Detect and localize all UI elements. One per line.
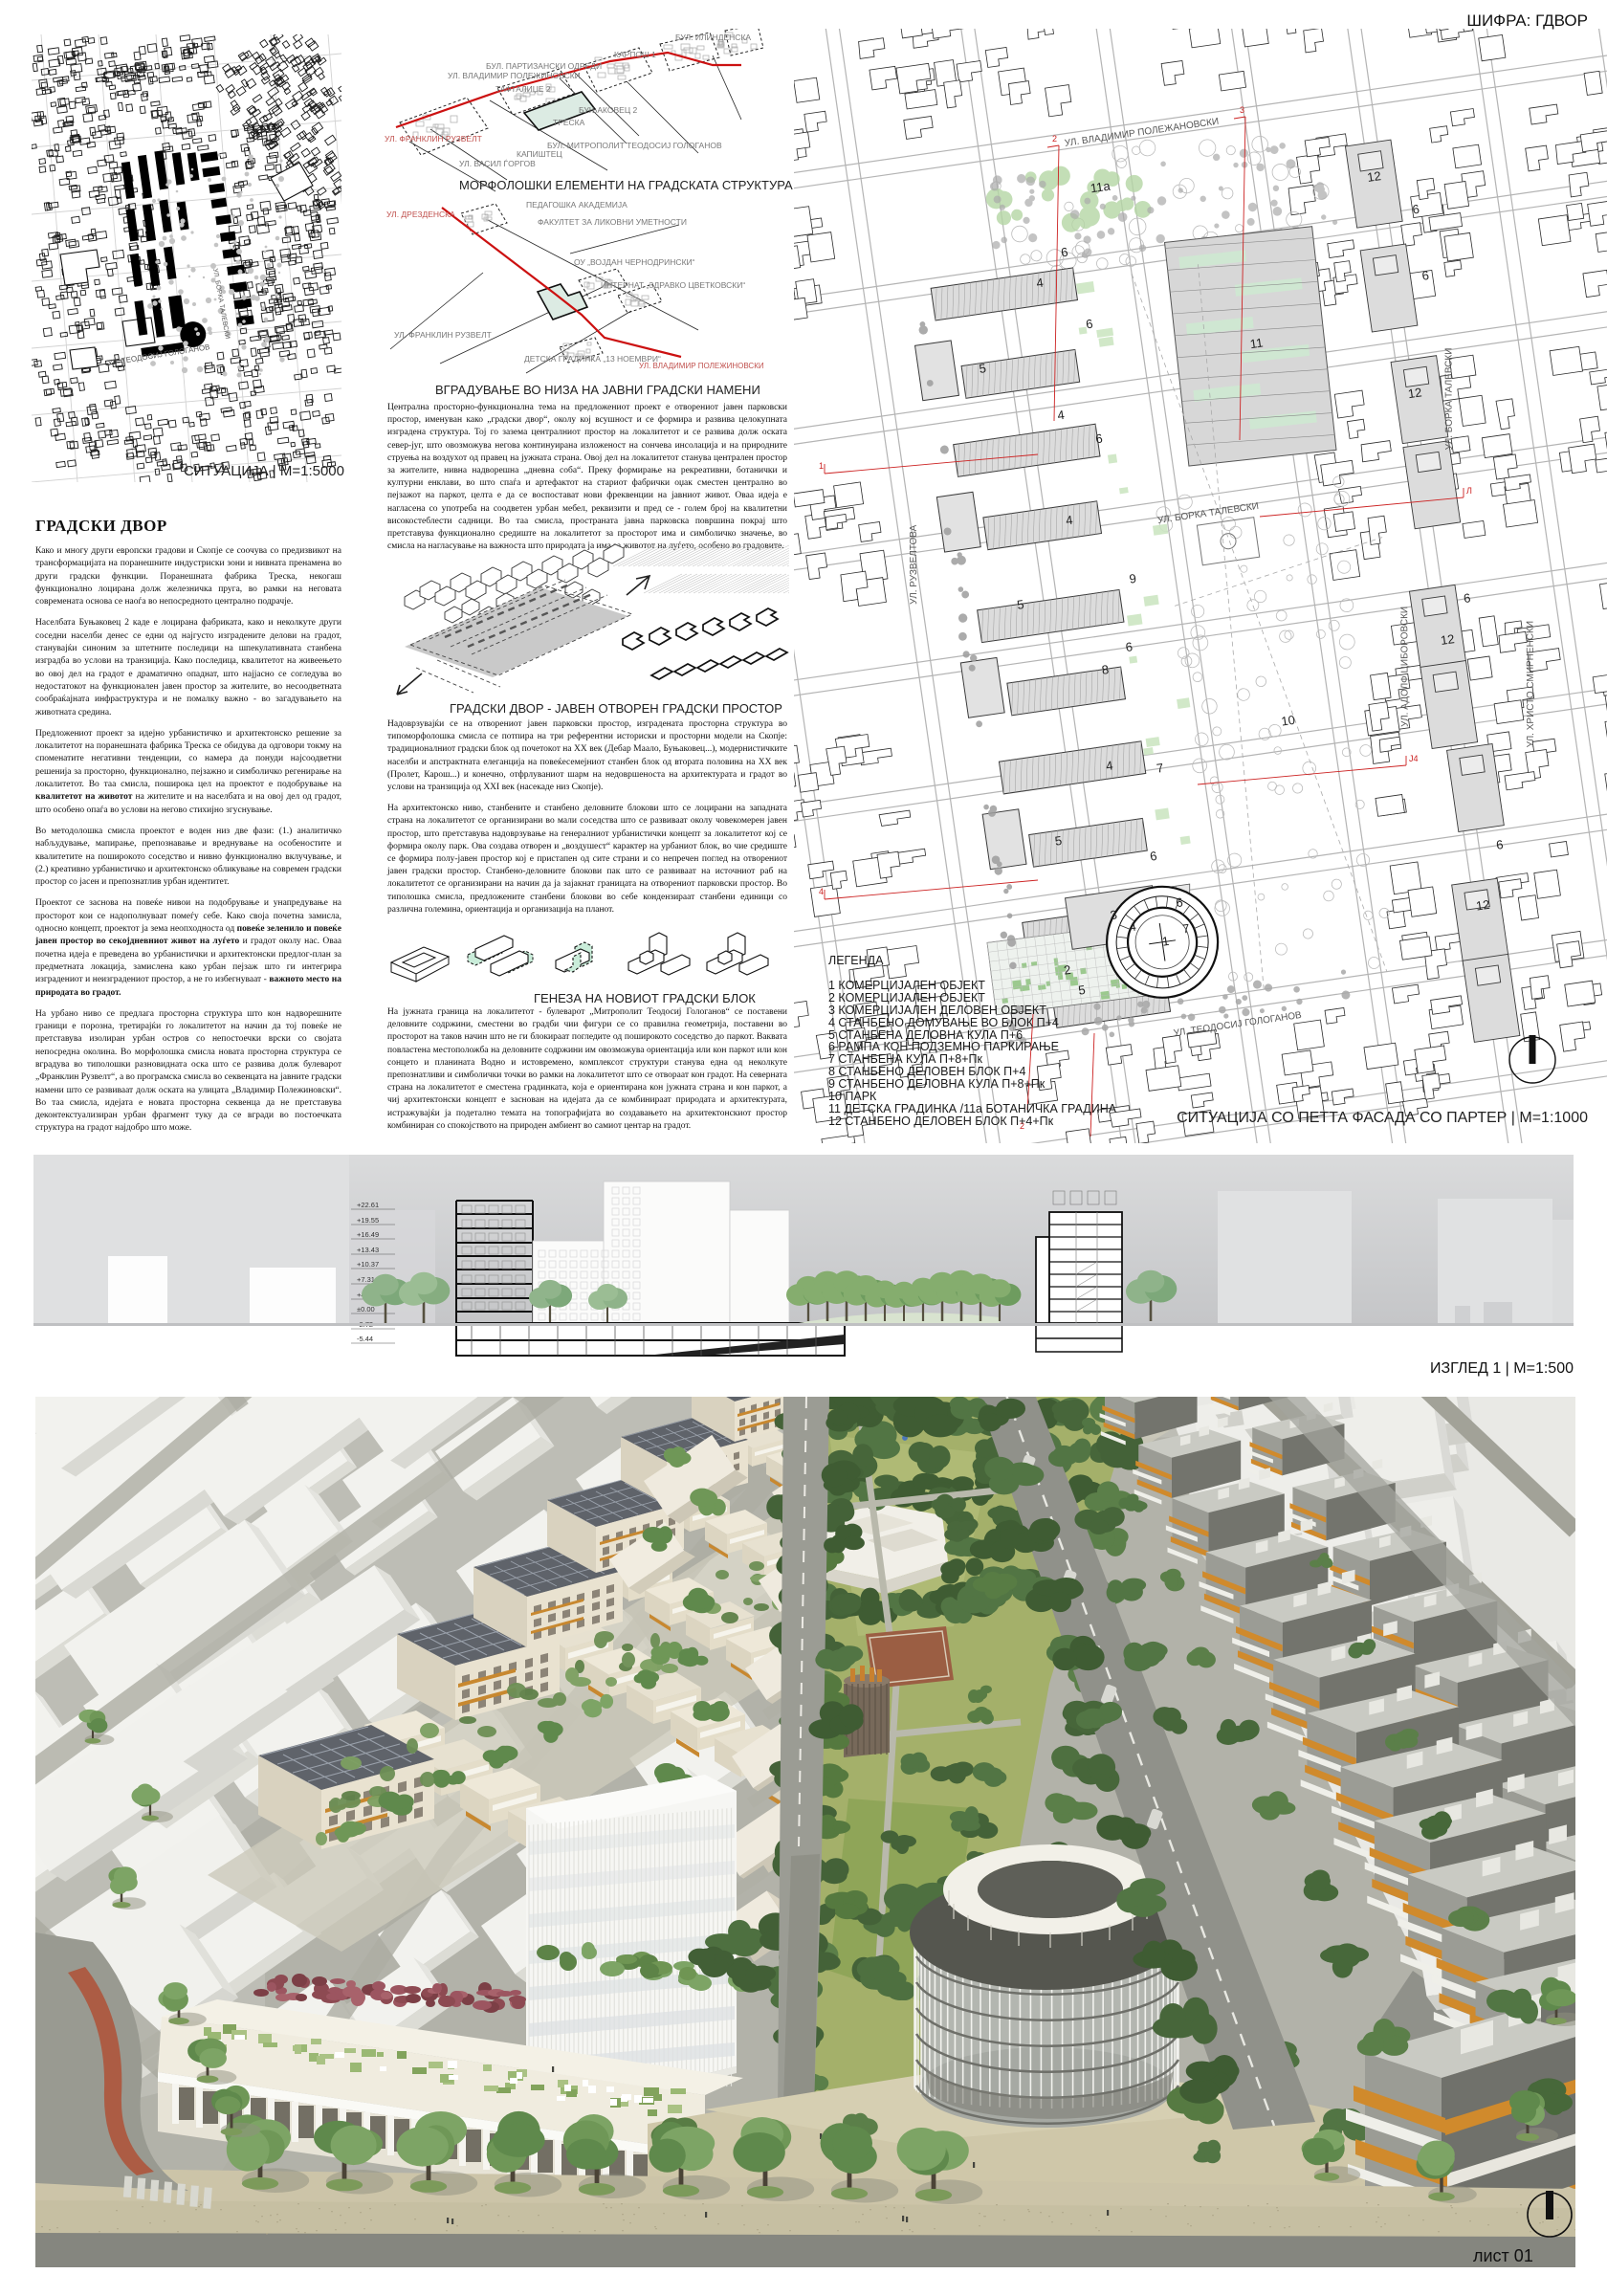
svg-text:6 РАМПА КОН ПОДЗЕМНО ПАРКИРАЊЕ: 6 РАМПА КОН ПОДЗЕМНО ПАРКИРАЊЕ xyxy=(828,1040,1059,1053)
svg-text:3: 3 xyxy=(1240,105,1244,115)
svg-text:Ј4: Ј4 xyxy=(1409,754,1419,763)
svg-text:6: 6 xyxy=(1495,837,1504,852)
svg-text:+22.61: +22.61 xyxy=(357,1201,379,1209)
svg-text:12: 12 xyxy=(1475,897,1490,914)
svg-text:УЛ. БОРКА ТАЛЕВСКИ: УЛ. БОРКА ТАЛЕВСКИ xyxy=(1443,348,1454,451)
svg-text:+13.43: +13.43 xyxy=(357,1246,379,1254)
svg-text:ЛЕГЕНДА: ЛЕГЕНДА xyxy=(828,954,884,967)
svg-text:+7.31: +7.31 xyxy=(357,1275,375,1284)
svg-text:+16.49: +16.49 xyxy=(357,1230,379,1239)
svg-text:БУЛ. ИЛИНДЕНСКА: БУЛ. ИЛИНДЕНСКА xyxy=(675,33,751,42)
svg-text:3: 3 xyxy=(1083,1142,1088,1143)
svg-text:УЛ. ФРАНКЛИН РУЗВЕЛТ: УЛ. ФРАНКЛИН РУЗВЕЛТ xyxy=(385,134,482,143)
svg-text:ИНТЕРНАТ „ЗДРАВКО ЦВЕТКОВСКИ“: ИНТЕРНАТ „ЗДРАВКО ЦВЕТКОВСКИ“ xyxy=(601,280,745,290)
svg-text:УЛ. ВАСИЛ ЃОРГОВ: УЛ. ВАСИЛ ЃОРГОВ xyxy=(459,159,536,168)
svg-text:11: 11 xyxy=(1249,335,1265,351)
svg-text:+19.55: +19.55 xyxy=(357,1216,379,1225)
svg-text:1 КОМЕРЦИЈАЛЕН ОБЈЕКТ: 1 КОМЕРЦИЈАЛЕН ОБЈЕКТ xyxy=(828,979,985,992)
svg-text:12: 12 xyxy=(1440,631,1455,648)
svg-text:9 СТАНБЕНО ДЕЛОВНА КУЛА П+8+Пк: 9 СТАНБЕНО ДЕЛОВНА КУЛА П+8+Пк xyxy=(828,1077,1046,1091)
svg-text:7 СТАНБЕНА КУЛА П+8+Пк: 7 СТАНБЕНА КУЛА П+8+Пк xyxy=(828,1052,982,1066)
svg-text:5: 5 xyxy=(1016,597,1024,612)
svg-text:6: 6 xyxy=(1420,268,1429,283)
svg-text:3 КОМЕРЦИЈАЛЕН ДЕЛОВЕН ОБЈЕКТ: 3 КОМЕРЦИЈАЛЕН ДЕЛОВЕН ОБЈЕКТ xyxy=(828,1004,1046,1017)
svg-text:ТАФТАЛИЏЕ 2: ТАФТАЛИЏЕ 2 xyxy=(495,84,551,94)
svg-text:ОУ „ВОЈДАН ЧЕРНОДРИНСКИ“: ОУ „ВОЈДАН ЧЕРНОДРИНСКИ“ xyxy=(574,257,695,267)
svg-text:БУЛ. ПАРТИЗАНСКИ ОДРЕДИ: БУЛ. ПАРТИЗАНСКИ ОДРЕДИ xyxy=(486,61,602,71)
svg-text:УЛ. ХРИСТО СМИРНЕНСКИ: УЛ. ХРИСТО СМИРНЕНСКИ xyxy=(1526,621,1536,747)
svg-text:6: 6 xyxy=(1060,245,1068,260)
svg-text:4 СТАНБЕНО ДОМУВАЊЕ ВО БЛОК П+: 4 СТАНБЕНО ДОМУВАЊЕ ВО БЛОК П+4 xyxy=(828,1016,1059,1029)
svg-text:ТРЕСКА: ТРЕСКА xyxy=(553,118,585,127)
svg-text:8 СТАНБЕНО ДЕЛОВЕН БЛОК П+4: 8 СТАНБЕНО ДЕЛОВЕН БЛОК П+4 xyxy=(828,1065,1025,1078)
svg-text:1: 1 xyxy=(819,461,824,471)
svg-text:2 КОМЕРЦИЈАЛЕН ОБЈЕКТ: 2 КОМЕРЦИЈАЛЕН ОБЈЕКТ xyxy=(828,991,985,1004)
svg-text:7: 7 xyxy=(1156,761,1164,776)
svg-text:6: 6 xyxy=(1149,849,1157,864)
svg-text:УЛ. АДОЛФ ЦИБОРОВСКИ: УЛ. АДОЛФ ЦИБОРОВСКИ xyxy=(1399,607,1410,727)
svg-text:12: 12 xyxy=(1407,385,1422,401)
svg-text:ФАКУЛТЕТ ЗА ЛИКОВНИ УМЕТНОСТИ: ФАКУЛТЕТ ЗА ЛИКОВНИ УМЕТНОСТИ xyxy=(538,217,687,227)
svg-text:12: 12 xyxy=(1366,168,1381,185)
svg-text:10: 10 xyxy=(1280,713,1295,729)
svg-text:УЛ. ВЛАДИМИР ПОЛЕЖИНОВСКИ: УЛ. ВЛАДИМИР ПОЛЕЖИНОВСКИ xyxy=(448,71,581,80)
svg-text:ПЕДАГОШКА АКАДЕМИЈА: ПЕДАГОШКА АКАДЕМИЈА xyxy=(526,200,627,210)
svg-text:УЛ. РУЗВЕЛТОВА: УЛ. РУЗВЕЛТОВА xyxy=(909,524,919,604)
svg-text:11a: 11a xyxy=(1090,178,1112,195)
svg-text:6: 6 xyxy=(1463,590,1471,606)
svg-text:УЛ. ДРЕЗДЕНСКА: УЛ. ДРЕЗДЕНСКА xyxy=(386,210,455,219)
svg-text:6: 6 xyxy=(1125,639,1134,654)
svg-text:9: 9 xyxy=(1129,571,1137,586)
svg-text:±0.00: ±0.00 xyxy=(357,1305,375,1314)
svg-text:10 ПАРК: 10 ПАРК xyxy=(828,1090,877,1103)
svg-text:УЛ. ФРАНКЛИН РУЗВЕЛТ: УЛ. ФРАНКЛИН РУЗВЕЛТ xyxy=(394,330,492,340)
svg-text:6: 6 xyxy=(1094,430,1103,446)
svg-text:8: 8 xyxy=(1101,662,1110,677)
svg-text:УЛ. ВЛАДИМИР ПОЛЕЖИНОВСКИ: УЛ. ВЛАДИМИР ПОЛЕЖИНОВСКИ xyxy=(639,362,764,370)
svg-text:6: 6 xyxy=(1085,317,1093,332)
svg-text:4: 4 xyxy=(1056,408,1065,423)
svg-text:УЛ. ВЛАДИМИР ПОЛЕЖАНОВСКИ: УЛ. ВЛАДИМИР ПОЛЕЖАНОВСКИ xyxy=(1064,117,1220,149)
svg-text:КАРПОШ 1: КАРПОШ 1 xyxy=(614,50,656,59)
svg-text:КАПИШТЕЦ: КАПИШТЕЦ xyxy=(517,149,562,159)
svg-text:+10.37: +10.37 xyxy=(357,1260,379,1269)
svg-text:БУЛ. МИТРОПОЛИТ ТЕОДОСИЈ ГОЛОГ: БУЛ. МИТРОПОЛИТ ТЕОДОСИЈ ГОЛОГАНОВ xyxy=(547,141,722,150)
svg-text:УЛ. БОРКА ТАЛЕВСКИ: УЛ. БОРКА ТАЛЕВСКИ xyxy=(1156,501,1259,526)
svg-text:4: 4 xyxy=(819,887,824,896)
svg-text:12 СТАНБЕНО ДЕЛОВЕН БЛОК П+4+П: 12 СТАНБЕНО ДЕЛОВЕН БЛОК П+4+Пк xyxy=(828,1115,1054,1128)
svg-text:Л: Л xyxy=(1466,486,1472,496)
svg-text:-5.44: -5.44 xyxy=(357,1335,373,1343)
svg-text:2: 2 xyxy=(1052,134,1057,143)
svg-text:БУЊАКОВЕЦ 2: БУЊАКОВЕЦ 2 xyxy=(579,105,637,115)
